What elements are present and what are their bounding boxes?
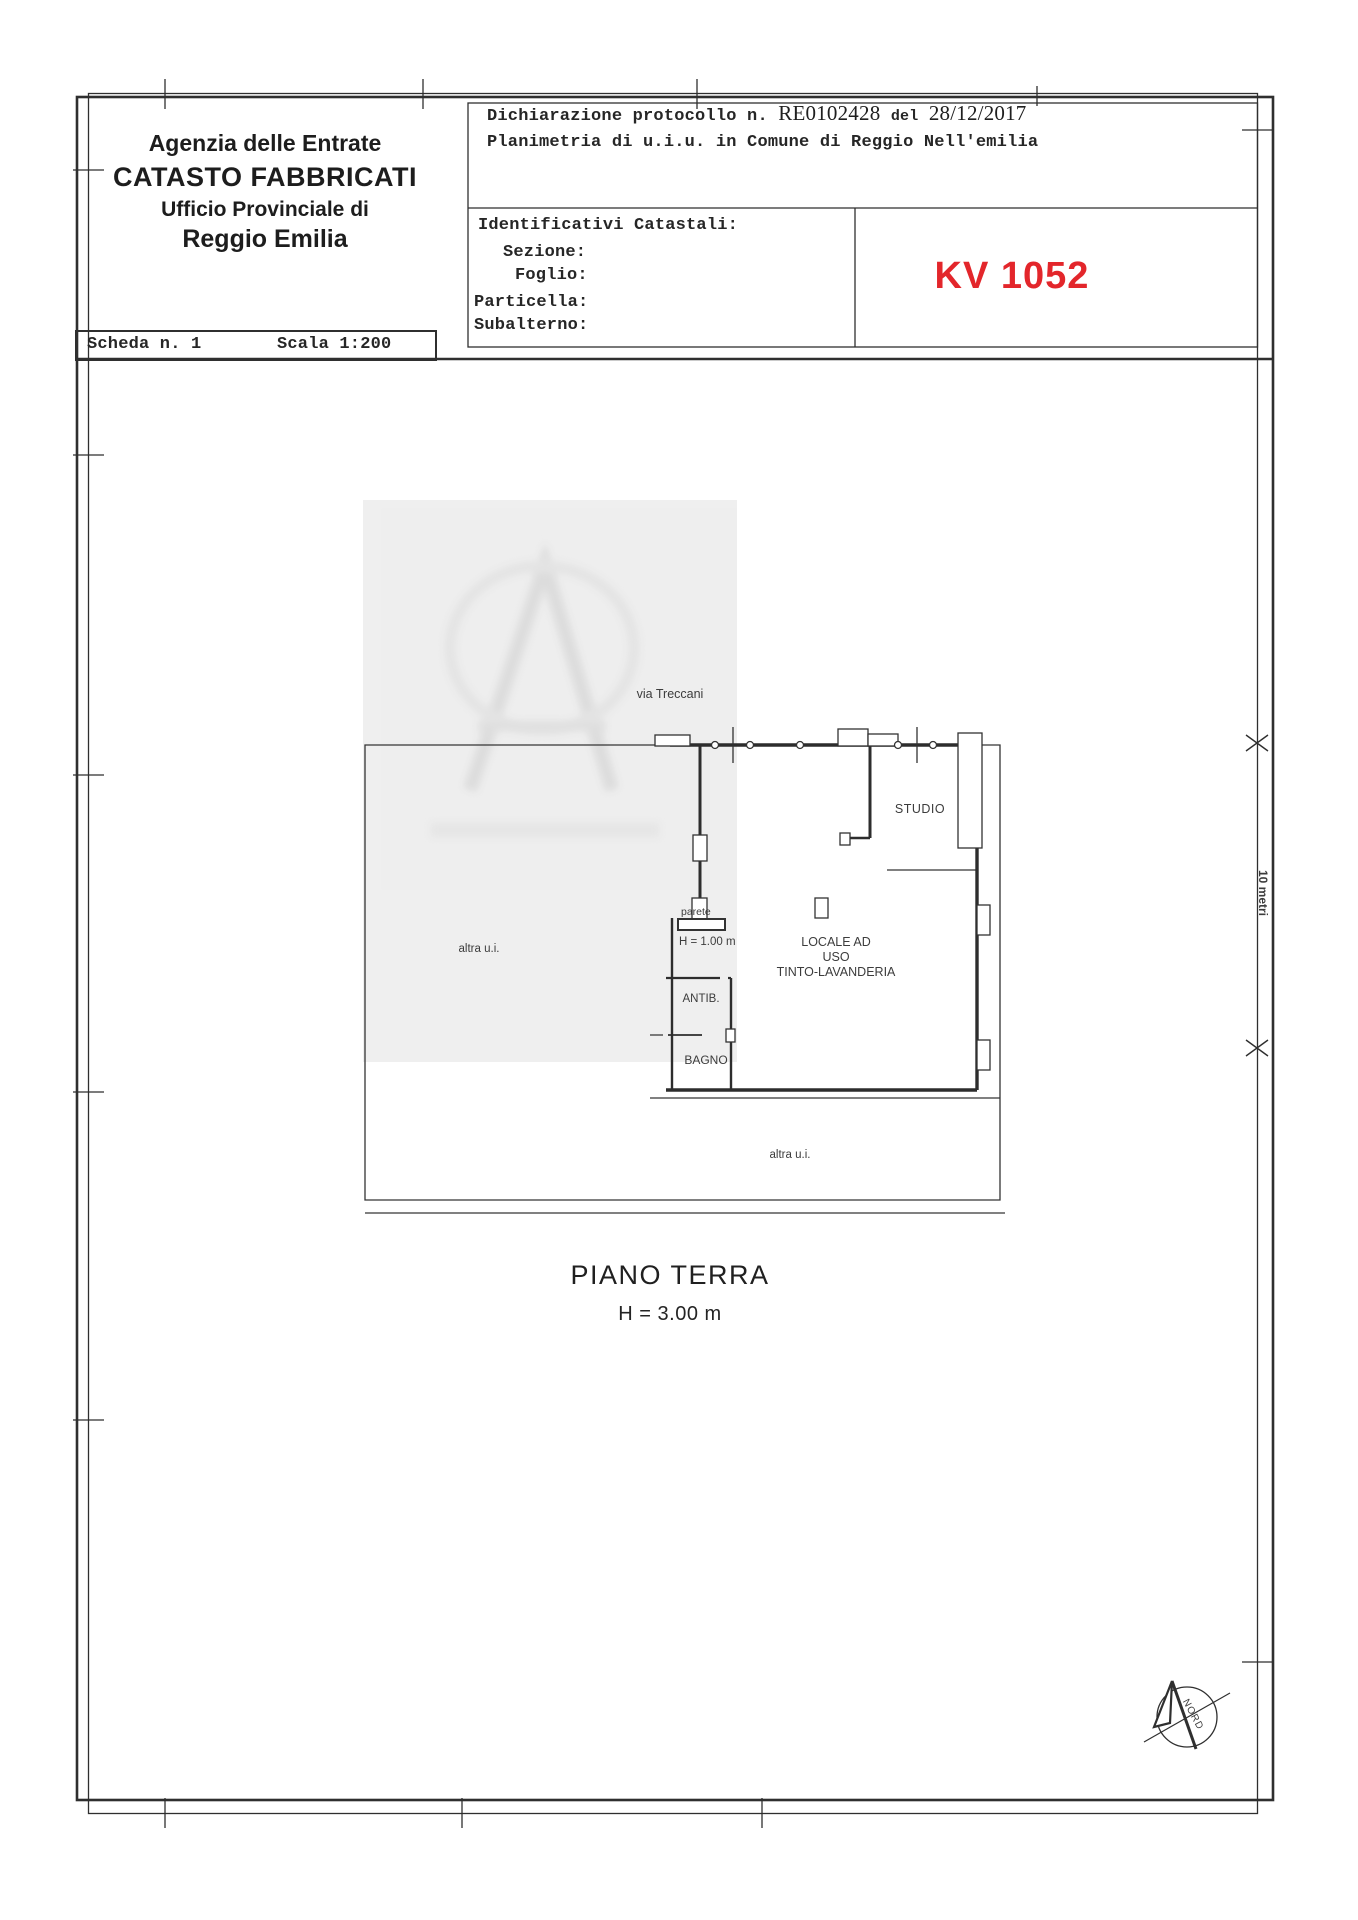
scheda-box: Scheda n. 1 Scala 1:200 <box>75 330 437 361</box>
identifier-particella: Particella: <box>474 293 588 312</box>
planimetria-subject: Planimetria di u.i.u. in Comune di Reggi… <box>487 133 1038 152</box>
altra-ui-bottom-label: altra u.i. <box>770 1149 811 1161</box>
room-locale-line1: LOCALE AD <box>801 935 870 949</box>
declaration-line: Dichiarazione protocollo n. RE0102428 de… <box>487 101 1027 126</box>
floor-height: H = 3.00 m <box>480 1303 860 1326</box>
street-label: via Treccani <box>637 687 704 701</box>
identifiers-title: Identificativi Catastali: <box>478 216 738 235</box>
floor-title: PIANO TERRA <box>480 1260 860 1291</box>
scheda-number: Scheda n. 1 <box>87 335 201 354</box>
room-locale-line3: TINTO-LAVANDERIA <box>777 965 896 979</box>
agency-line1: Agenzia delle Entrate <box>90 132 440 155</box>
protocol-del: del <box>891 108 919 125</box>
cadastral-code: KV 1052 <box>857 210 1167 342</box>
room-studio-label: STUDIO <box>895 802 945 816</box>
parete-label: parete <box>681 906 711 918</box>
agency-line3: Ufficio Provinciale di <box>90 199 440 220</box>
cadastral-sheet: 10 metri <box>0 0 1358 1920</box>
dimension-label: 10 metri <box>1256 870 1270 916</box>
parete-height-label: H = 1.00 m <box>679 936 736 948</box>
scala-value: Scala 1:200 <box>277 335 391 354</box>
identifier-foglio: Foglio: <box>515 266 588 285</box>
declaration-prefix: Dichiarazione protocollo n. <box>487 107 768 126</box>
protocol-number: RE0102428 <box>778 101 880 125</box>
identifier-subalterno: Subalterno: <box>474 316 588 335</box>
protocol-date: 28/12/2017 <box>929 101 1027 125</box>
agency-line2: CATASTO FABBRICATI <box>90 164 440 191</box>
room-antib-label: ANTIB. <box>682 993 719 1005</box>
agency-header: Agenzia delle Entrate CATASTO FABBRICATI… <box>90 132 440 252</box>
altra-ui-left-label: altra u.i. <box>459 943 500 955</box>
agency-line4: Reggio Emilia <box>90 227 440 252</box>
identifier-sezione: Sezione: <box>503 243 586 262</box>
room-bagno-label: BAGNO <box>684 1053 727 1067</box>
room-locale-line2: USO <box>822 950 849 964</box>
